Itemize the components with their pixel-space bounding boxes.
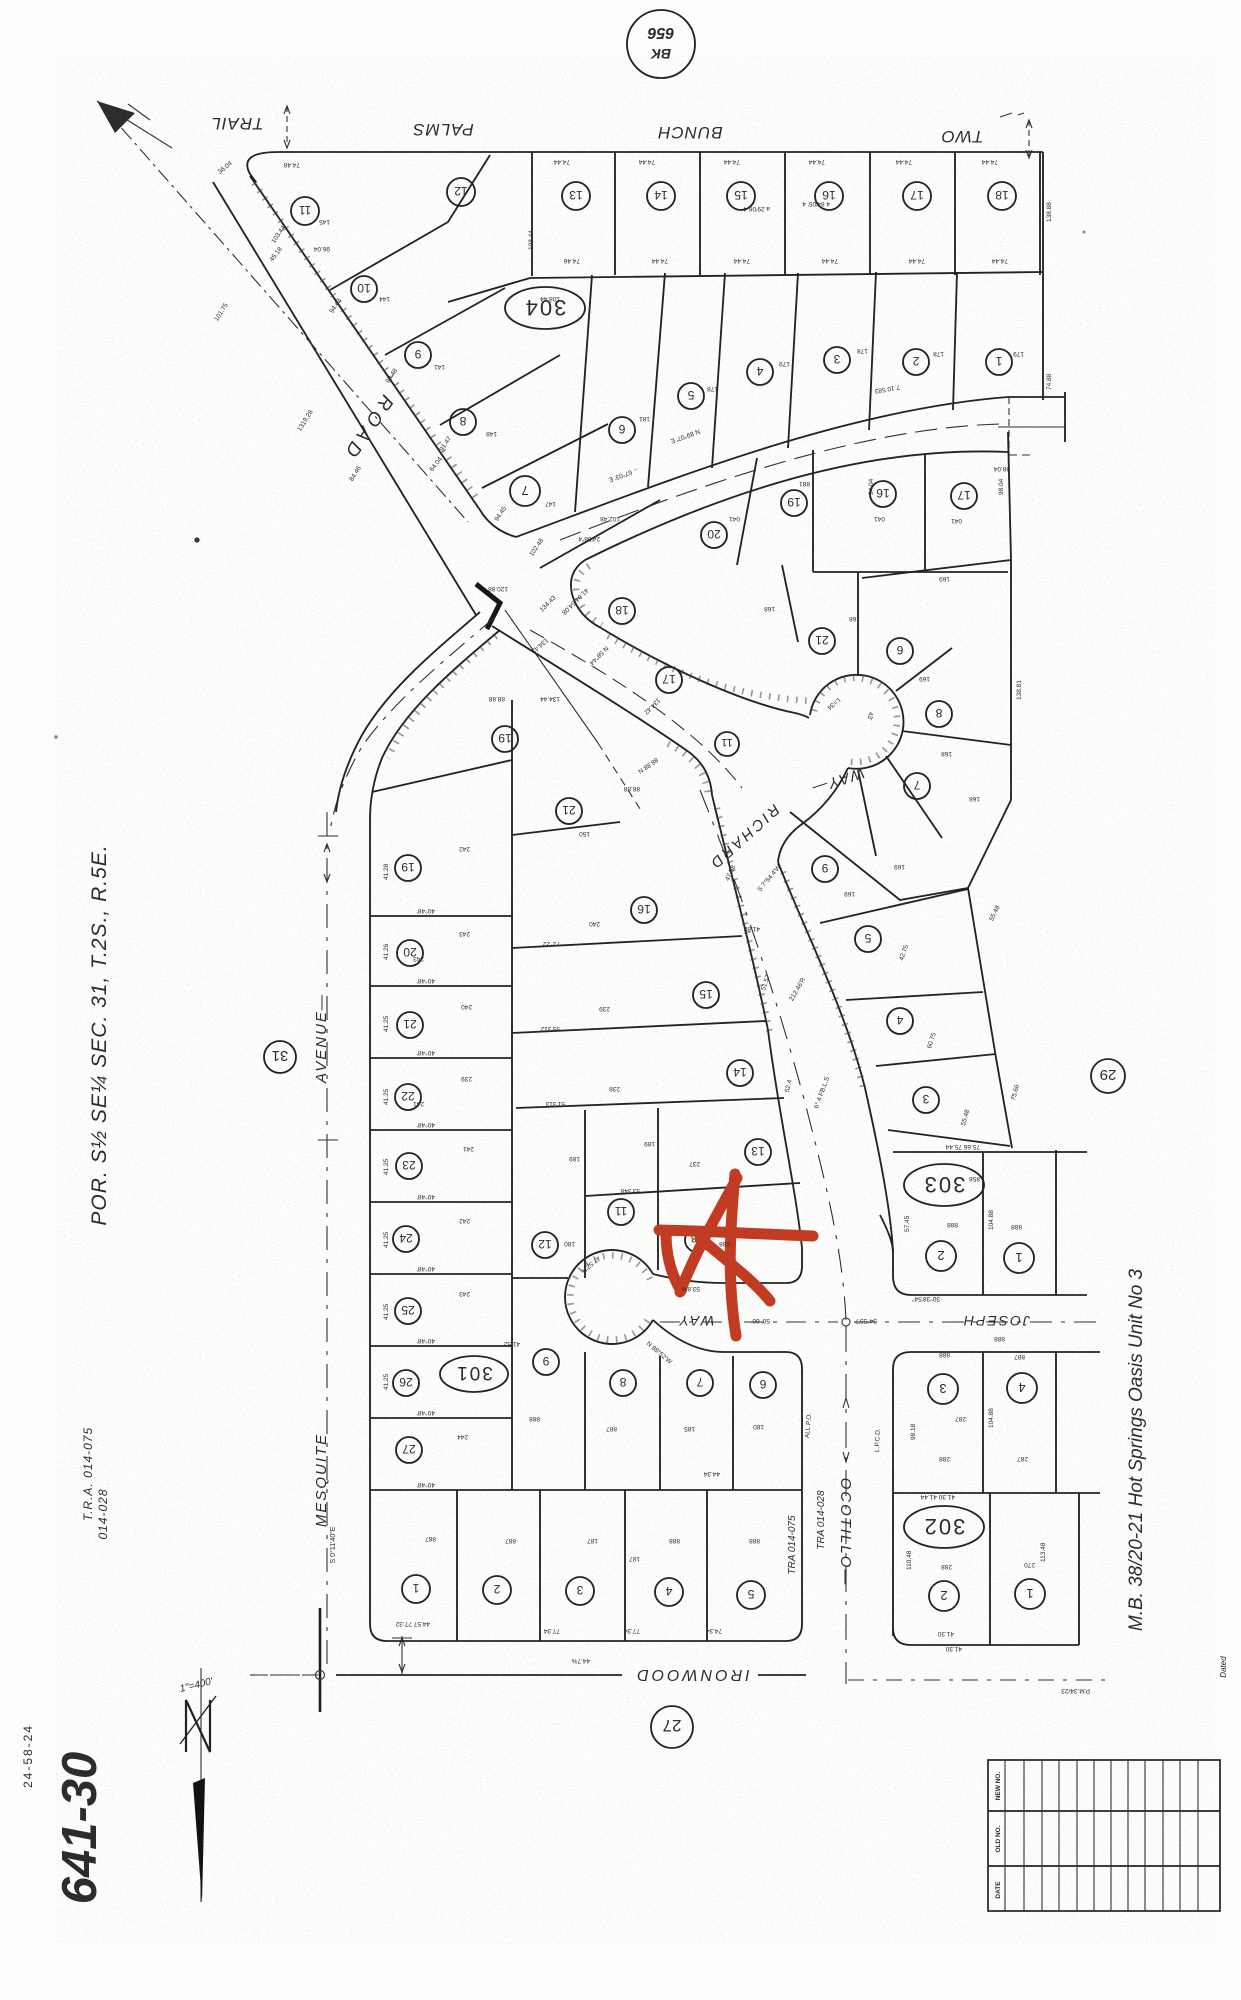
svg-text:24-58-24: 24-58-24 — [21, 1724, 35, 1788]
svg-text:Dated: Dated — [1219, 1656, 1228, 1678]
svg-text:656: 656 — [648, 24, 675, 41]
